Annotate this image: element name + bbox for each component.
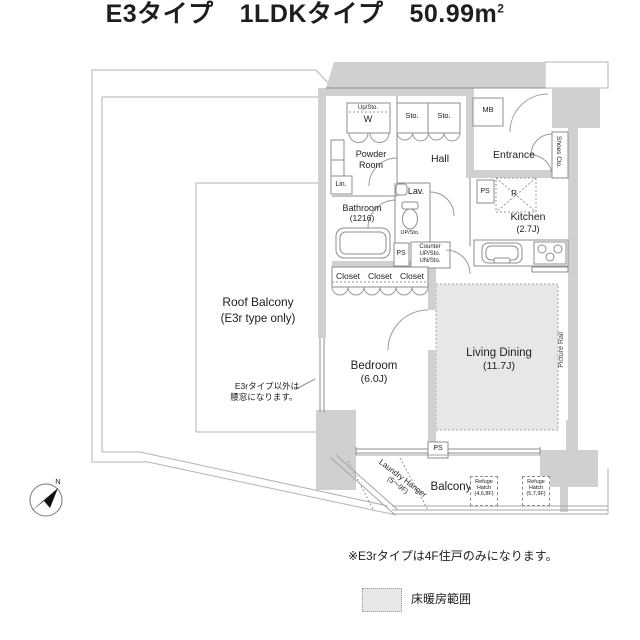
lav-basin <box>396 184 407 195</box>
compass-icon <box>30 484 62 516</box>
title-plan: 1LDKタイプ <box>240 0 384 28</box>
powder-room-label-1: Powder <box>356 150 387 160</box>
type-note: ※E3rタイプは4F住戸のみになります。 <box>348 550 558 563</box>
refuge-hatch-left: Refuge Hatch (4,6,8F) <box>470 476 498 506</box>
ps-living-label: PS <box>433 445 442 453</box>
kitchen-size: (2.7J) <box>516 225 539 235</box>
refuge-hatch-right: Refuge Hatch (5,7,9F) <box>522 476 550 506</box>
bedroom-label: Bedroom <box>351 360 398 373</box>
sto-right-label: Sto. <box>437 112 450 120</box>
counter-label-2: UP/Sto. <box>420 251 441 258</box>
toilet-bowl <box>403 209 418 229</box>
bedroom-size: (6.0J) <box>361 374 388 386</box>
counter-label-1: Counter <box>419 244 440 251</box>
ps-sanitary-label: PS <box>396 250 405 258</box>
window-note-2: 腰窓になります。 <box>230 393 297 402</box>
kitchen-label: Kitchen <box>510 212 545 224</box>
toilet-sto-label: UP/Sto. <box>401 230 420 236</box>
toilet-tank <box>402 202 418 209</box>
bathroom-size: (1216) <box>350 214 375 223</box>
compass-north-label: N <box>55 478 60 486</box>
title-area-exp: 2 <box>497 2 504 16</box>
lav-label: Lav. <box>408 187 424 197</box>
title-area: 50.99m <box>409 0 497 28</box>
closet-2-label: Closet <box>368 272 392 281</box>
shoes-closet-label: Shoes Clo. <box>555 136 562 168</box>
entrance-label: Entrance <box>493 150 535 162</box>
title-type: E3タイプ <box>106 0 214 28</box>
page-title: E3タイプ1LDKタイプ50.99m2 <box>106 1 505 29</box>
lin-label: Lin. <box>335 181 346 189</box>
closet-1-label: Closet <box>336 272 360 281</box>
washer-label: W <box>364 115 373 125</box>
upsto-label: Up/Sto. <box>358 105 378 112</box>
refrigerator-label: R <box>511 190 517 199</box>
roof-balcony-label: Roof Balcony <box>222 296 293 309</box>
floorplan-page: E3タイプ1LDKタイプ50.99m2 Roof Balcony (E3r ty… <box>0 0 640 640</box>
window-note-1: E3rタイプ以外は <box>235 382 299 391</box>
closet-3-label: Closet <box>400 272 424 281</box>
floor-heating-legend-label: 床暖房範囲 <box>411 593 471 606</box>
counter-label-3: UN/Sto. <box>419 258 440 265</box>
sto-left-label: Sto. <box>405 112 418 120</box>
balcony-label: Balcony <box>431 481 472 494</box>
floorplan-drawing <box>0 0 640 640</box>
powder-room-label-2: Room <box>359 161 383 171</box>
living-dining-label: Living Dining <box>466 347 532 360</box>
ps-kitchen-label: PS <box>480 188 489 196</box>
picture-rail-label: Picture Rail <box>558 332 566 368</box>
roof-balcony-note: (E3r type only) <box>221 313 296 326</box>
mb-label: MB <box>482 106 493 114</box>
living-dining-size: (11.7J) <box>483 361 515 373</box>
hall-label: Hall <box>431 154 449 166</box>
floor-heating-legend-swatch <box>362 588 402 612</box>
